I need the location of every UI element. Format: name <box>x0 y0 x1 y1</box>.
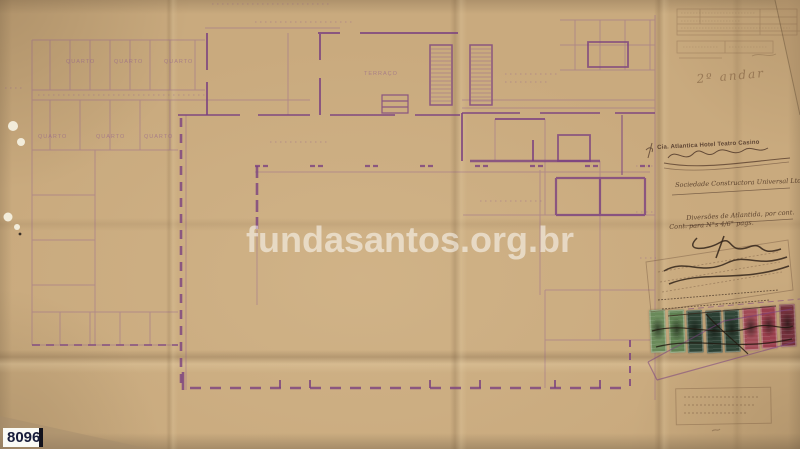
revenue-stamp <box>760 305 778 349</box>
room-label: QUARTO <box>96 134 125 140</box>
staircase-hatching <box>431 49 491 101</box>
revenue-stamp <box>741 307 759 351</box>
room-label: QUARTO <box>66 59 95 65</box>
revenue-stamp <box>649 309 667 353</box>
revenue-stamp <box>778 304 796 348</box>
archive-number-label: 8096 <box>3 428 43 447</box>
revenue-stamp <box>668 309 686 353</box>
room-label: TERRAÇO <box>364 71 398 77</box>
room-label: QUARTO <box>114 59 143 65</box>
revenue-stamp <box>686 310 704 354</box>
paper-holes <box>4 121 26 235</box>
revenue-stamps-row <box>649 304 796 356</box>
scanned-blueprint-page: QUARTO QUARTO QUARTO QUARTO QUARTO QUART… <box>0 0 800 449</box>
watermark: fundasantos.org.br <box>246 219 574 261</box>
room-label: QUARTO <box>38 134 67 140</box>
room-label: QUARTO <box>164 59 193 65</box>
revenue-stamp <box>705 310 723 354</box>
plan-walls-faint <box>32 15 655 400</box>
revenue-stamp <box>723 309 741 353</box>
plan-walls-dark <box>32 33 655 390</box>
room-label: QUARTO <box>144 134 173 140</box>
